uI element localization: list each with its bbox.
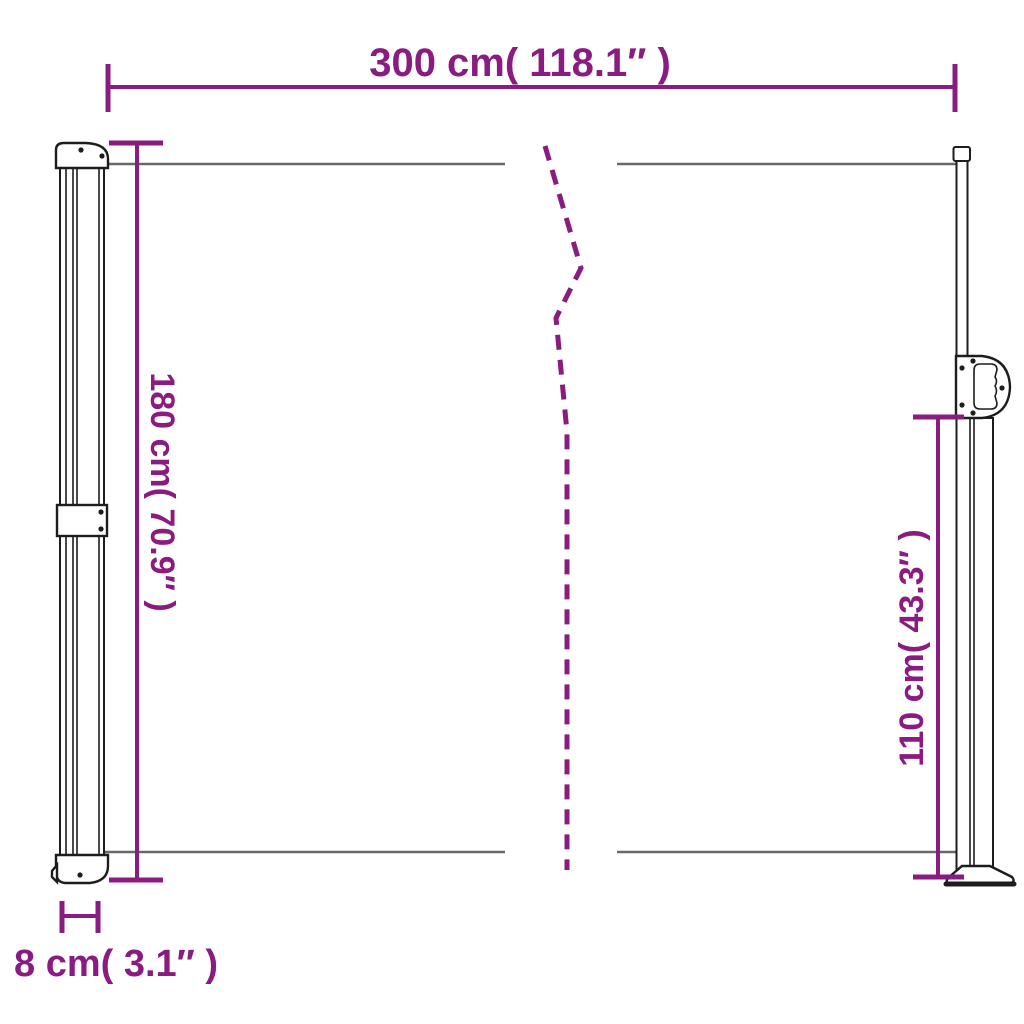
screw-dot (98, 526, 103, 531)
left-height-dimension-label: 180 cm( 70.9″ ) (143, 372, 181, 611)
screw-dot (99, 153, 104, 158)
cassette-foot-tab (52, 865, 57, 882)
wall-bracket (57, 505, 107, 536)
screw-dot (970, 410, 975, 415)
diagram-canvas: 300 cm( 118.1″ ) 180 cm( 70.9″ ) 110 cm(… (0, 0, 1024, 1024)
right-height-dimension: 110 cm( 43.3″ ) (893, 417, 964, 877)
left-height-dimension: 180 cm( 70.9″ ) (109, 143, 181, 880)
width-dimension-label: 300 cm( 118.1″ ) (369, 41, 671, 85)
break-line (545, 146, 581, 870)
awning-dimension-diagram: 300 cm( 118.1″ ) 180 cm( 70.9″ ) 110 cm(… (0, 0, 1024, 1024)
screw-dot (999, 385, 1004, 390)
awning-fabric (105, 164, 957, 852)
screw-dot (78, 147, 83, 152)
right-height-dimension-label: 110 cm( 43.3″ ) (893, 529, 931, 766)
screw-dot (959, 402, 964, 407)
cassette-post (52, 143, 108, 883)
screw-dot (98, 509, 103, 514)
depth-dimension: 8 cm( 3.1″ ) (14, 901, 218, 985)
cassette-bottom-cap (56, 855, 108, 883)
screw-dot (77, 872, 82, 877)
pole-top-cap (954, 147, 971, 161)
upper-pole (957, 161, 968, 357)
screw-dot (959, 365, 964, 370)
screw-dot (970, 358, 975, 363)
depth-dimension-label: 8 cm( 3.1″ ) (14, 943, 218, 985)
support-pole (946, 147, 1014, 884)
width-dimension: 300 cm( 118.1″ ) (108, 41, 955, 112)
